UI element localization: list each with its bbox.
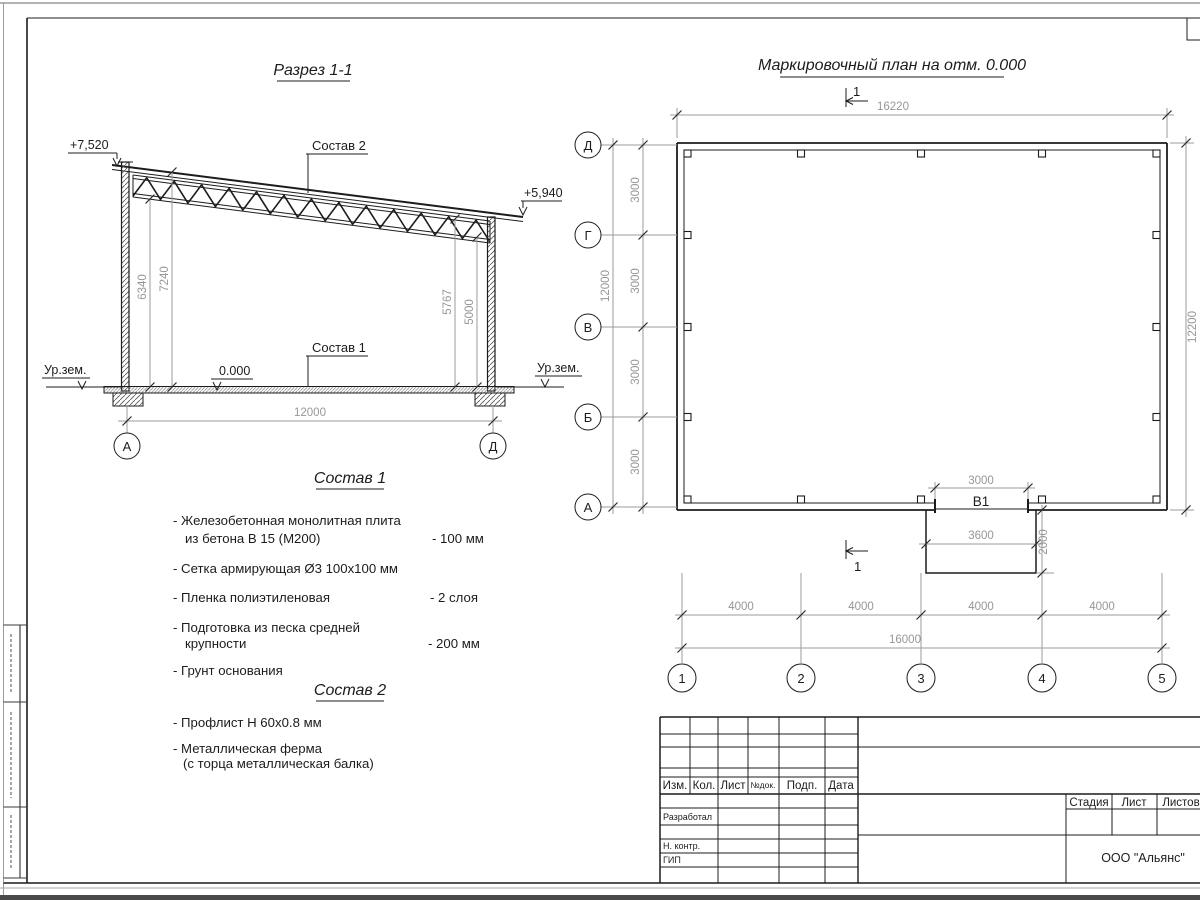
plan-columns <box>684 150 1160 503</box>
plan-view: Маркировочный план на отм. 0.000 1 1 <box>575 57 1199 692</box>
dim-opening-3000: 3000 <box>968 475 994 487</box>
section-wall-right <box>488 217 496 391</box>
section-width-dim: 12000 А Д <box>114 405 506 459</box>
plan-axis-a: А <box>584 500 593 515</box>
sostav2-title: Состав 2 <box>314 682 386 699</box>
tb-list: Лист <box>721 780 747 792</box>
section-title: Разрез 1-1 <box>273 62 352 79</box>
sostav1-val1: - 100 мм <box>432 531 484 546</box>
level-zero-label: 0.000 <box>219 364 250 378</box>
plan-walls <box>677 143 1167 513</box>
tb-ndok: №док. <box>751 780 776 790</box>
truss-web <box>133 178 490 242</box>
tb-gip: ГИП <box>663 855 681 865</box>
dim-12200: 12200 <box>1187 311 1199 343</box>
sostav1-item4b: крупности <box>185 636 246 651</box>
section-view: Разрез 1-1 <box>42 62 582 459</box>
title-block: Изм. Кол. Лист №док. Подп. Дата Разработ… <box>660 717 1200 883</box>
tb-company: ООО "Альянс" <box>1101 851 1185 865</box>
dim-7240: 7240 <box>159 266 171 292</box>
dim-left-3000-1: 3000 <box>630 177 642 203</box>
dim-16220: 16220 <box>877 101 909 113</box>
drawing-canvas: Разрез 1-1 <box>0 0 1200 900</box>
sostav1-val4: - 200 мм <box>428 636 480 651</box>
dim-4000-2: 4000 <box>848 601 874 613</box>
tb-listov: Листов <box>1162 797 1199 809</box>
section-cut-mark-bottom: 1 <box>846 540 868 574</box>
dim-4000-4: 4000 <box>1089 601 1115 613</box>
tb-stadiya: Стадия <box>1069 797 1108 809</box>
elevation-5940: +5,940 <box>524 186 563 200</box>
plan-axis-2: 2 <box>797 671 804 686</box>
tb-podp: Подп. <box>787 780 818 792</box>
ground-right-label: Ур.зем. <box>537 361 579 375</box>
sostav1-title: Состав 1 <box>314 470 386 487</box>
tb-data: Дата <box>828 780 854 792</box>
sostav1-leader-label: Состав 1 <box>312 340 366 355</box>
sostav1-item1: - Железобетонная монолитная плита <box>173 513 402 528</box>
elevation-7520: +7,520 <box>70 138 109 152</box>
sostav2-item2: - Металлическая ферма <box>173 741 323 756</box>
dim-4000-1: 4000 <box>728 601 754 613</box>
cut-mark-bottom-label: 1 <box>854 559 861 574</box>
dim-6340: 6340 <box>137 274 149 300</box>
format-corner-cell <box>1187 18 1200 40</box>
tb-razrabotal: Разработал <box>663 812 712 822</box>
dim-5000: 5000 <box>464 299 476 325</box>
dim-left-3000-4: 3000 <box>630 449 642 475</box>
dim-12000-section: 12000 <box>294 407 326 419</box>
sheet-frame <box>0 3 1200 900</box>
sheet-bottom-edge <box>0 895 1200 900</box>
sostav1-item1b: из бетона В 15 (М200) <box>185 531 320 546</box>
left-margin-table <box>4 625 28 878</box>
opening-label-b1: В1 <box>973 494 990 509</box>
sostav1-item4: - Подготовка из песка средней <box>173 620 360 635</box>
tb-list2: Лист <box>1122 797 1148 809</box>
tb-izm: Изм. <box>663 780 688 792</box>
sostav1-list: Состав 1 - Железобетонная монолитная пли… <box>173 470 484 678</box>
plan-axis-b: Б <box>584 410 593 425</box>
sostav2-item2b: (с торца металлическая балка) <box>183 756 374 771</box>
dim-left-12000: 12000 <box>600 270 612 302</box>
dim-porch-2000: 2000 <box>1038 529 1050 555</box>
footing-left <box>113 393 143 406</box>
plan-axis-1: 1 <box>678 671 685 686</box>
dim-left-3000-3: 3000 <box>630 359 642 385</box>
plan-title: Маркировочный план на отм. 0.000 <box>758 57 1026 74</box>
plan-dim-right: 12200 <box>1170 136 1199 517</box>
section-wall-left <box>122 162 130 391</box>
plan-axis-v: В <box>584 320 593 335</box>
sostav1-item2: - Сетка армирующая Ø3 100х100 мм <box>173 561 398 576</box>
plan-axis-g: Г <box>584 228 591 243</box>
section-axis-a: А <box>123 439 132 454</box>
plan-dim-top: 16220 <box>670 101 1174 138</box>
plan-axis-5: 5 <box>1158 671 1165 686</box>
sostav1-item5: - Грунт основания <box>173 663 283 678</box>
plan-axis-d: Д <box>584 138 593 153</box>
dim-16000: 16000 <box>889 634 921 646</box>
sostav1-item3: - Пленка полиэтиленовая <box>173 590 330 605</box>
drawing-sheet: Разрез 1-1 <box>0 0 1200 900</box>
plan-axis-3: 3 <box>917 671 924 686</box>
plan-opening-dims: 3000 В1 3600 2000 <box>919 475 1054 580</box>
tb-nkontr: Н. контр. <box>663 841 700 851</box>
footing-right <box>475 393 505 406</box>
section-cut-mark-top: 1 <box>846 84 868 107</box>
dim-5767: 5767 <box>442 289 454 315</box>
dim-4000-3: 4000 <box>968 601 994 613</box>
sostav2-item1: - Профлист Н 60х0.8 мм <box>173 715 322 730</box>
ground-left-label: Ур.зем. <box>44 363 86 377</box>
sostav1-val3: - 2 слоя <box>430 590 478 605</box>
sostav2-list: Состав 2 - Профлист Н 60х0.8 мм - Металл… <box>173 682 386 771</box>
dim-porch-3600: 3600 <box>968 530 994 542</box>
plan-axis-4: 4 <box>1038 671 1045 686</box>
sostav2-leader-label: Состав 2 <box>312 138 366 153</box>
plan-bottom-axes: 4000 4000 4000 4000 16000 1 2 3 4 5 <box>668 573 1176 692</box>
sostav-leaders: Состав 2 Состав 1 <box>306 138 368 386</box>
dim-left-3000-2: 3000 <box>630 268 642 294</box>
cut-mark-top-label: 1 <box>853 84 860 99</box>
tb-kol: Кол. <box>693 780 716 792</box>
plan-left-axes: 3000 3000 3000 3000 12000 Д Г В Б А <box>575 132 677 520</box>
section-axis-d: Д <box>489 439 498 454</box>
